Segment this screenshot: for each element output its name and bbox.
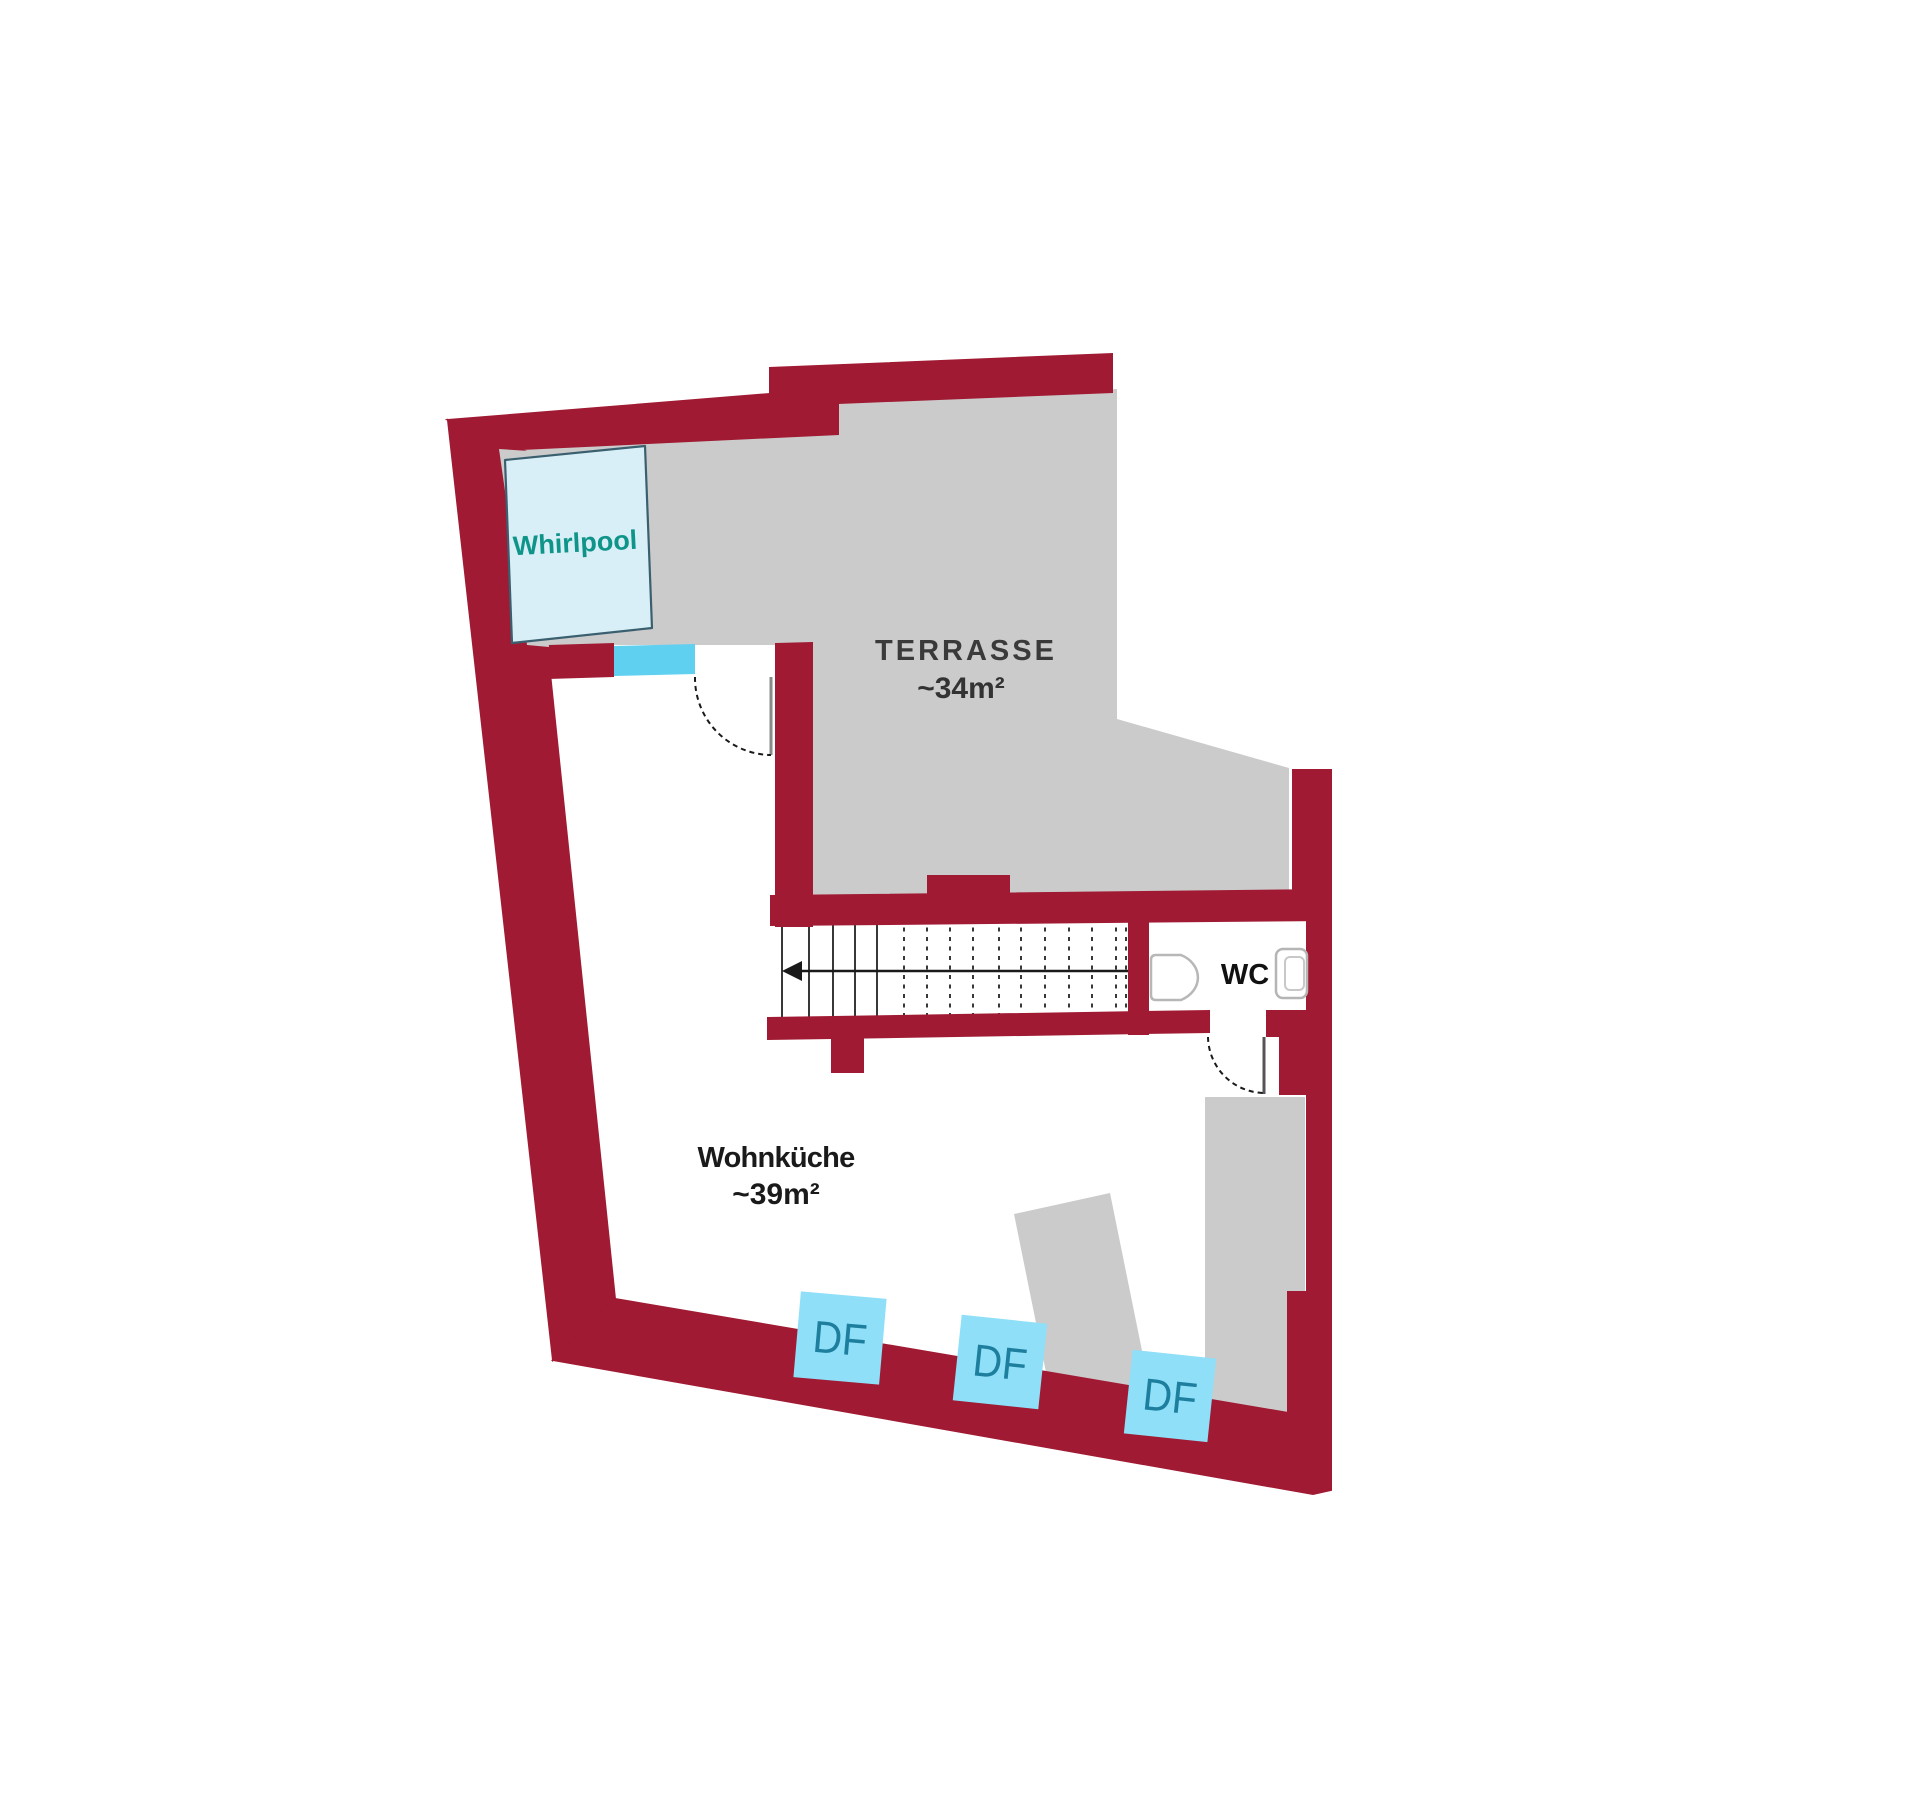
- svg-text:DF: DF: [1140, 1368, 1199, 1424]
- svg-text:TERRASSE: TERRASSE: [875, 635, 1057, 667]
- svg-text:DF: DF: [970, 1334, 1029, 1390]
- svg-text:WC: WC: [1221, 959, 1269, 991]
- svg-text:Wohnküche: Wohnküche: [697, 1142, 855, 1174]
- svg-text:DF: DF: [811, 1311, 869, 1367]
- svg-text:~39m²: ~39m²: [732, 1178, 820, 1211]
- svg-text:~34m²: ~34m²: [917, 672, 1005, 705]
